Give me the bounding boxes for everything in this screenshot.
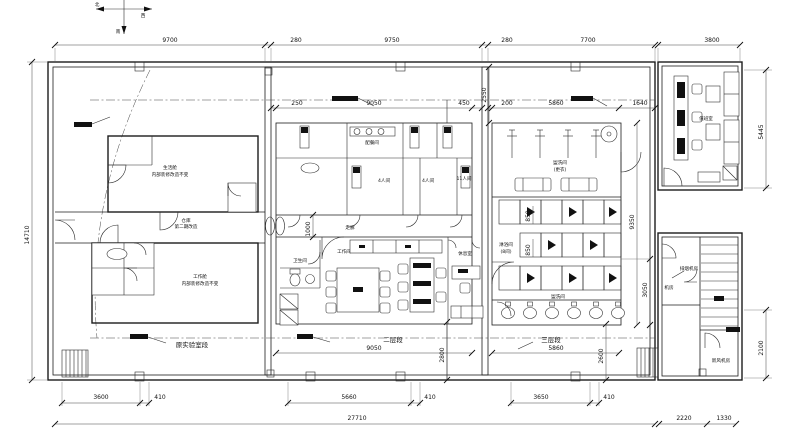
dim-27710: 27710 bbox=[347, 415, 366, 422]
room-4a-label: 4人间 bbox=[378, 177, 391, 184]
floor-plan-canvas: 北 西 南 bbox=[0, 0, 800, 444]
three-story-section-label: 三层段 bbox=[541, 335, 561, 344]
dim-410a: 410 bbox=[154, 394, 166, 401]
wc-label: 卫生间 bbox=[293, 257, 307, 264]
left-section: 生活舱 内部装修改造不变 工作舱 内部装修改造不变 仓库 第二期改造 bbox=[55, 117, 285, 323]
pantry-label: 配餐间 bbox=[365, 139, 379, 146]
shower-note: (8间) bbox=[500, 248, 511, 255]
dim-2220: 2220 bbox=[676, 415, 691, 422]
wall-markers bbox=[135, 62, 706, 381]
radiator-grilles bbox=[62, 348, 658, 377]
wash-dress-note: (更衣) bbox=[554, 166, 567, 173]
life-module-label: 生活舱 bbox=[163, 164, 177, 171]
lounge-label: 休息室 bbox=[458, 250, 472, 257]
compass-west-label: 西 bbox=[141, 13, 146, 19]
two-story-section-label: 二层段 bbox=[383, 335, 403, 344]
dim-2550: 2550 bbox=[481, 87, 488, 102]
wash-basins bbox=[502, 302, 625, 319]
life-module-note: 内部装修改造不变 bbox=[152, 171, 189, 178]
store-note: 第二期改造 bbox=[175, 223, 198, 230]
dim-2100: 2100 bbox=[758, 340, 765, 355]
shower-label: 淋浴间 bbox=[499, 241, 513, 248]
dim-250: 250 bbox=[291, 100, 303, 107]
annex-duty-room: 值班室 bbox=[664, 72, 739, 186]
dim-9050b: 9050 bbox=[366, 345, 381, 352]
floor-plan-drawing: 北 西 南 bbox=[0, 0, 800, 444]
dim-1000: 1000 bbox=[305, 221, 312, 236]
fresh-air-room-label: 新风机房 bbox=[712, 357, 731, 364]
work-module-label: 工作舱 bbox=[193, 273, 207, 280]
main-building-outline bbox=[48, 62, 655, 380]
dim-410b: 410 bbox=[424, 394, 436, 401]
stair-treads bbox=[701, 245, 738, 326]
north-arrow: 北 西 南 bbox=[95, 0, 152, 35]
dim-3650: 3650 bbox=[533, 394, 548, 401]
right-section: 盥洗间 (更衣) 淋浴间 (8 bbox=[492, 123, 641, 325]
dim-9350: 9350 bbox=[629, 214, 636, 229]
dim-3800: 3800 bbox=[704, 37, 719, 44]
shower-stalls bbox=[499, 200, 621, 290]
dim-9700: 9700 bbox=[162, 37, 177, 44]
dim-5445: 5445 bbox=[758, 124, 765, 139]
dim-280b: 280 bbox=[501, 37, 513, 44]
dim-9050t: 9050 bbox=[366, 100, 381, 107]
annex-stair-block: 排烟机房 机房 新风机房 bbox=[662, 237, 738, 376]
dim-450: 450 bbox=[458, 100, 470, 107]
room-4b-label: 4人间 bbox=[422, 177, 435, 184]
lab-section-label: 原实验室段 bbox=[176, 340, 209, 349]
dim-2800: 2800 bbox=[439, 347, 446, 362]
dim-410c: 410 bbox=[603, 394, 615, 401]
duty-room-label: 值班室 bbox=[699, 115, 713, 122]
dim-1640: 1640 bbox=[632, 100, 647, 107]
work-module-note: 内部装修改造不变 bbox=[182, 280, 219, 287]
dim-1330: 1330 bbox=[716, 415, 731, 422]
dim-5860b: 5860 bbox=[548, 345, 563, 352]
corridor-label: 走廊 bbox=[345, 224, 355, 231]
dim-5660: 5660 bbox=[341, 394, 356, 401]
wash-dress-label: 盥洗间 bbox=[553, 159, 567, 166]
dim-280a: 280 bbox=[290, 37, 302, 44]
dim-3050: 3050 bbox=[642, 282, 649, 297]
compass-north-label: 北 bbox=[95, 1, 100, 8]
dim-9750: 9750 bbox=[384, 37, 399, 44]
wash-label: 盥洗间 bbox=[551, 293, 565, 300]
dim-3600: 3600 bbox=[93, 394, 108, 401]
compass-south-label: 南 bbox=[116, 28, 121, 35]
annotation-markers bbox=[130, 96, 740, 349]
dim-2600: 2600 bbox=[598, 348, 605, 363]
dim-850a: 850 bbox=[525, 210, 532, 222]
room-11-label: 11人间 bbox=[456, 175, 471, 182]
dim-14710: 14710 bbox=[24, 225, 31, 244]
workroom-label: 工作间 bbox=[337, 248, 351, 255]
dim-200: 200 bbox=[501, 100, 513, 107]
fan-room-label: 机房 bbox=[664, 284, 674, 291]
shower-fixtures bbox=[507, 126, 617, 158]
store-label: 仓库 bbox=[181, 217, 191, 224]
dim-5860t: 5860 bbox=[548, 100, 563, 107]
smoke-fan-room-label: 排烟机房 bbox=[680, 265, 699, 272]
dim-7700: 7700 bbox=[580, 37, 595, 44]
dimension-lines: 9700 280 9750 280 7700 3800 14710 5445 2… bbox=[24, 37, 772, 427]
dim-850b: 850 bbox=[525, 244, 532, 256]
